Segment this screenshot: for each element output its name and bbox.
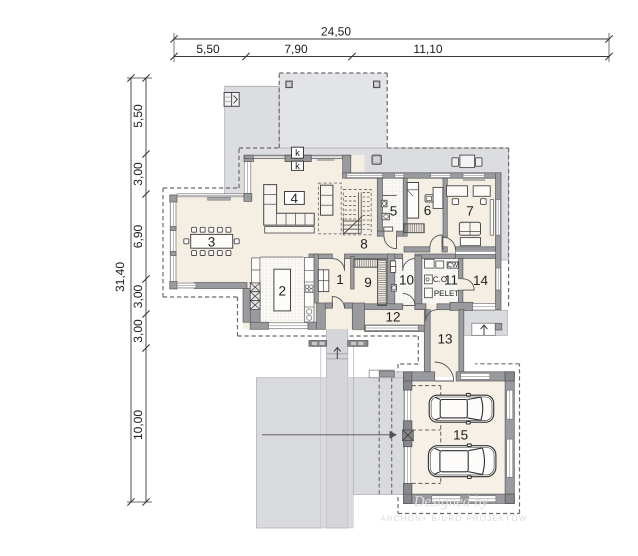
svg-text:13: 13	[437, 332, 452, 347]
svg-text:15: 15	[453, 428, 468, 443]
svg-text:k: k	[295, 148, 300, 159]
svg-text:6,90: 6,90	[131, 224, 145, 248]
svg-text:7,90: 7,90	[284, 42, 308, 56]
svg-text:7: 7	[466, 204, 474, 219]
svg-text:Designed by: Designed by	[413, 494, 489, 510]
svg-text:3,00: 3,00	[131, 319, 145, 343]
svg-text:10,00: 10,00	[131, 410, 145, 440]
svg-text:3: 3	[208, 235, 216, 250]
svg-text:k: k	[295, 161, 300, 172]
svg-text:3,00: 3,00	[131, 284, 145, 308]
svg-text:5,50: 5,50	[131, 104, 145, 128]
svg-text:11,10: 11,10	[413, 42, 442, 56]
svg-text:14: 14	[473, 273, 489, 288]
svg-text:PELET: PELET	[434, 289, 459, 298]
svg-text:1: 1	[336, 272, 344, 287]
svg-text:2: 2	[279, 284, 287, 299]
svg-text:31,40: 31,40	[113, 262, 127, 292]
svg-text:9: 9	[364, 275, 372, 290]
svg-text:8: 8	[360, 237, 368, 252]
svg-text:11: 11	[444, 273, 458, 288]
svg-text:5,50: 5,50	[196, 42, 220, 56]
svg-text:6: 6	[424, 203, 432, 218]
svg-text:3,00: 3,00	[131, 162, 145, 186]
svg-text:CW: CW	[447, 262, 459, 269]
svg-text:5: 5	[390, 204, 398, 219]
svg-text:10: 10	[399, 273, 414, 288]
svg-text:24,50: 24,50	[321, 25, 351, 39]
svg-text:4: 4	[290, 191, 298, 206]
svg-text:ARCHON+ BIURO PROJEKTÓW: ARCHON+ BIURO PROJEKTÓW	[380, 514, 527, 523]
svg-text:12: 12	[385, 310, 400, 325]
